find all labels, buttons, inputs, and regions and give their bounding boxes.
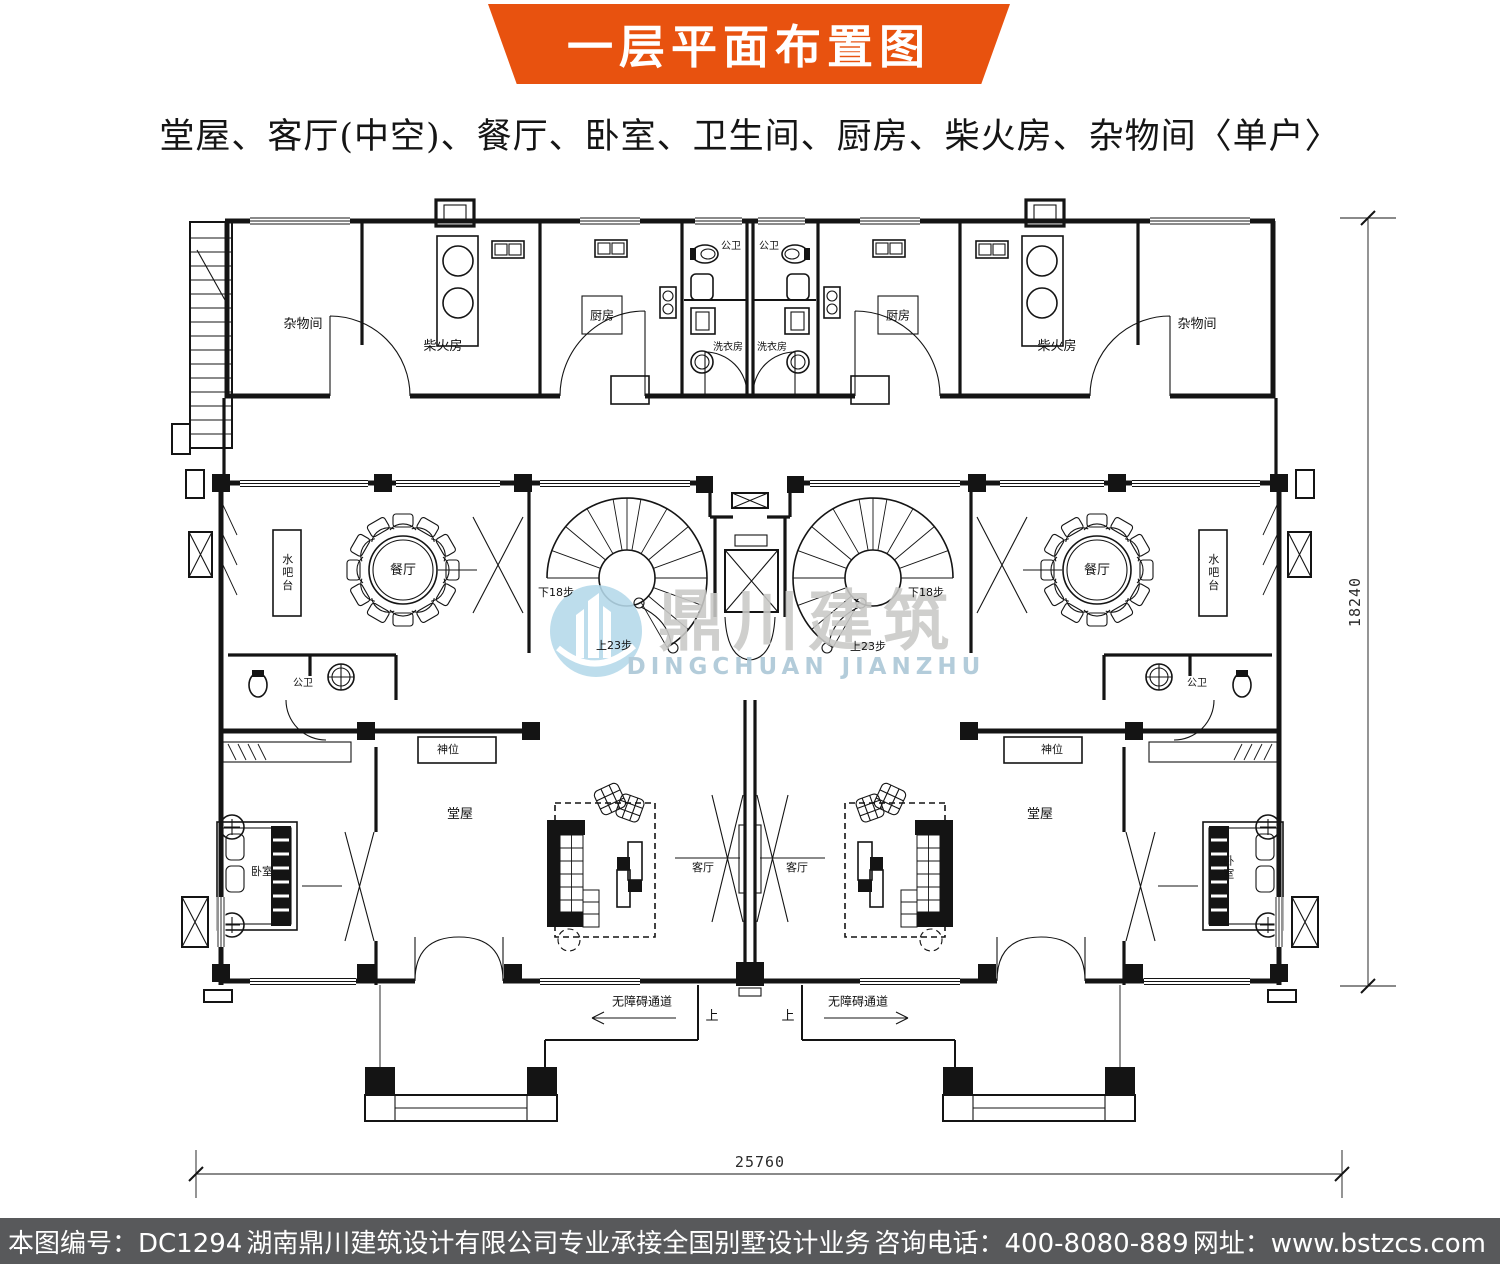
fridge [611,376,649,404]
kitchen-sink [492,240,627,258]
watermark-cn-text: 鼎川建筑 [658,583,958,660]
porch-steps [365,1067,557,1121]
double-entry-door [415,937,503,981]
drawing-number: 本图编号：DC1294 [8,1223,242,1260]
dimension-lines [189,211,1396,1198]
elevator-core [710,485,790,996]
page: { "header": { "title": "一层平面布置图", "banne… [0,0,1500,1264]
shrine-cabinet [418,737,496,763]
laundry-fixtures [690,245,718,373]
water-bar-counter [273,530,301,616]
phone-number: 咨询电话：400-8080-889 [875,1223,1189,1260]
watermark: 鼎川建筑 DINGCHUAN JIANZHU [550,583,985,680]
footer-bar: 本图编号：DC1294 湖南鼎川建筑设计有限公司专业承接全国别墅设计业务 咨询电… [0,1218,1500,1264]
firewood-stove [437,236,478,346]
floor-plan-drawing: 鼎川建筑 DINGCHUAN JIANZHU [0,0,1500,1264]
kitchen-label-box [582,296,622,334]
watermark-en-text: DINGCHUAN JIANZHU [627,654,986,680]
website-url: 网址：www.bstzcs.com [1193,1223,1486,1260]
company-slogan: 湖南鼎川建筑设计有限公司专业承接全国别墅设计业务 [246,1223,870,1260]
sofa-group [547,782,655,951]
gas-range [660,287,676,318]
bed [217,815,297,937]
